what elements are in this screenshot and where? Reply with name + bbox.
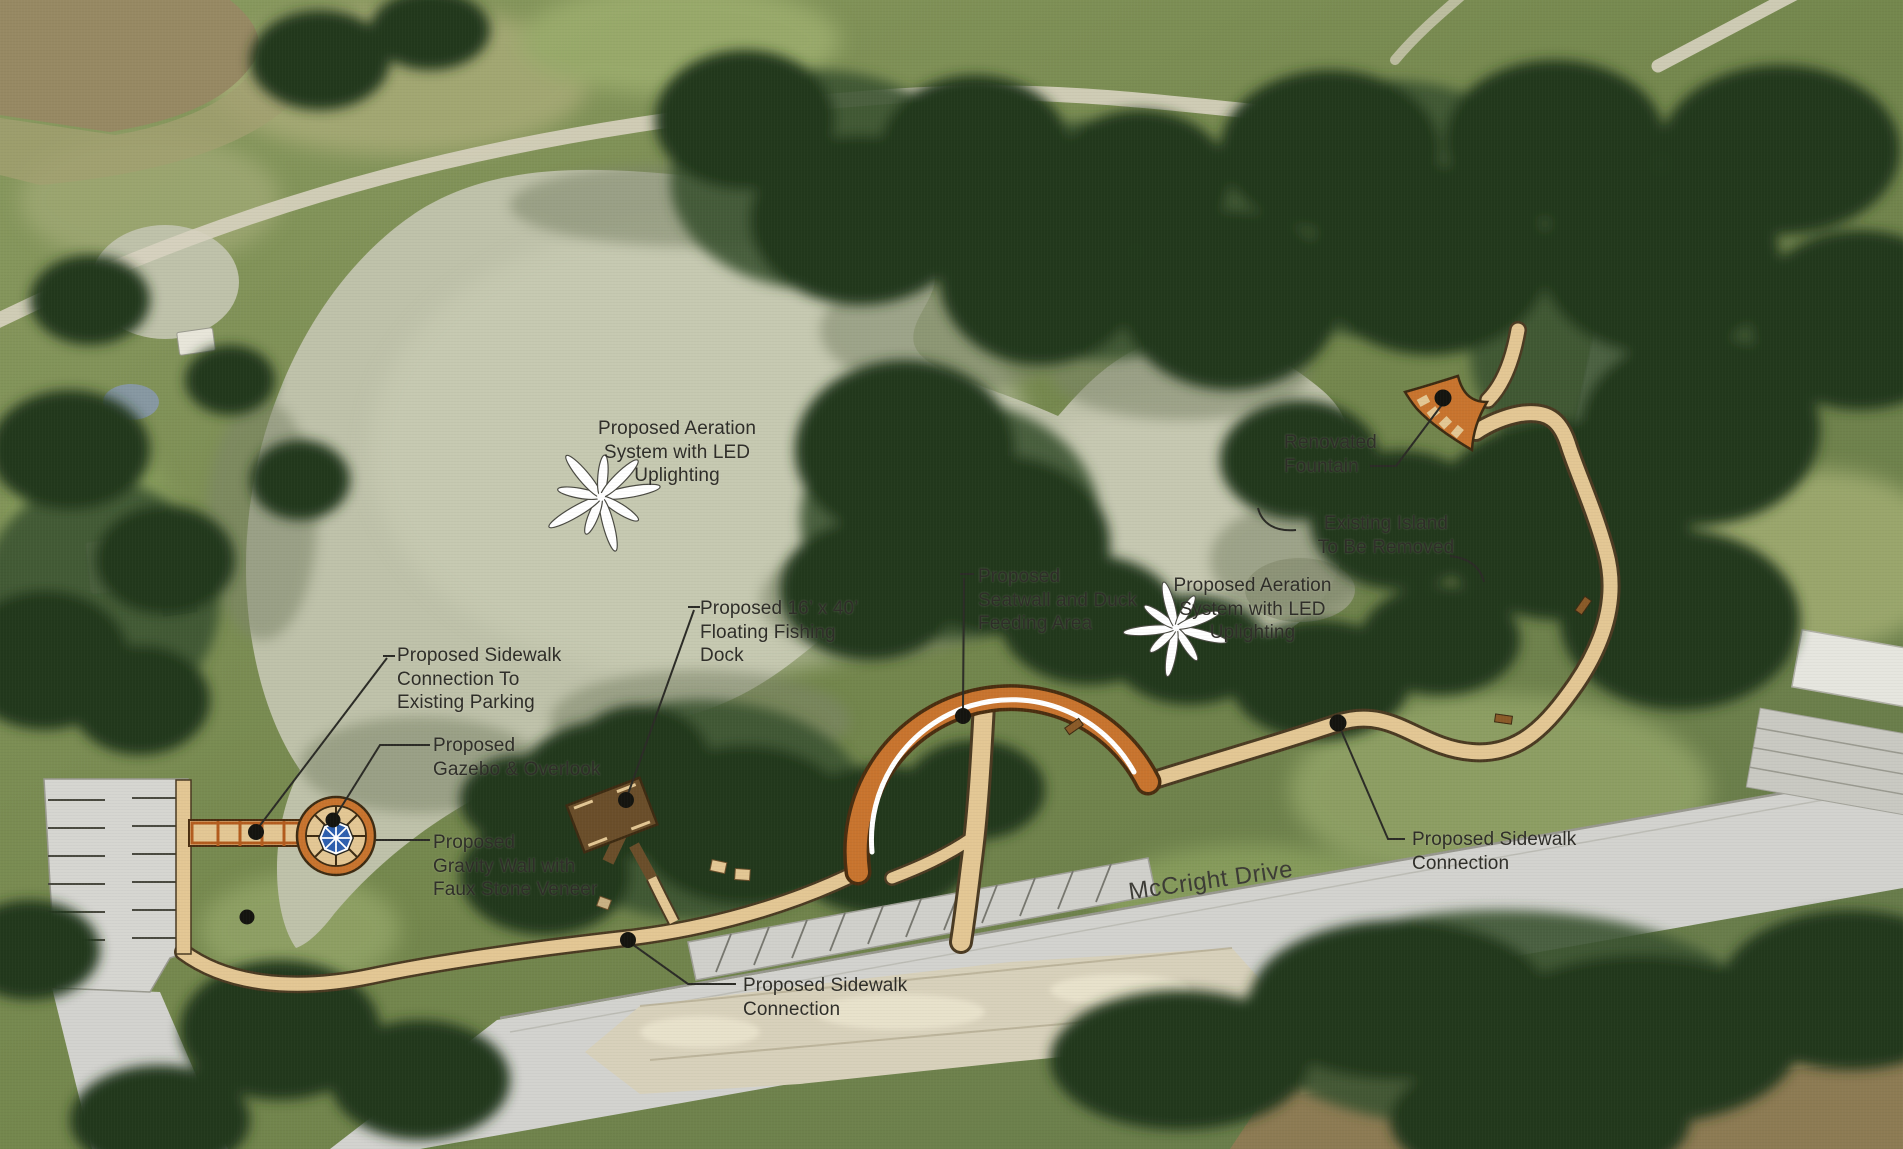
black-dot-marker — [955, 708, 971, 724]
picnic-table — [735, 869, 751, 881]
black-dot-marker — [240, 910, 255, 925]
gazebo-overlook-icon — [297, 797, 375, 875]
picnic-table — [710, 860, 727, 874]
label-seatwall-duck-area: Proposed Seatwall and Duck Feeding Area — [978, 565, 1137, 636]
boardwalk — [189, 820, 307, 846]
site-plan-svg — [0, 0, 1903, 1149]
label-sidewalk-connection-east: Proposed Sidewalk Connection — [1412, 828, 1576, 875]
bench — [1495, 714, 1513, 724]
fountain-dot-marker — [1435, 390, 1452, 407]
black-dot-marker — [248, 824, 264, 840]
label-floating-fishing-dock: Proposed 16’ x 40’ Floating Fishing Dock — [700, 597, 858, 668]
label-aeration-east: Proposed Aeration System with LED Upligh… — [1160, 574, 1345, 645]
label-renovated-fountain: Renovated Fountain — [1284, 431, 1377, 478]
black-dot-marker — [618, 792, 634, 808]
parking-sidewalk-strip — [176, 780, 191, 954]
label-gazebo-overlook: Proposed Gazebo & Overlook — [433, 734, 601, 781]
label-gravity-wall: Proposed Gravity Wall with Faux Stone Ve… — [433, 831, 597, 902]
black-dot-marker — [1330, 715, 1347, 732]
black-dot-marker — [326, 813, 341, 828]
black-dot-marker — [620, 932, 636, 948]
label-sidewalk-connection-south: Proposed Sidewalk Connection — [743, 974, 907, 1021]
label-aeration-west: Proposed Aeration System with LED Upligh… — [572, 417, 782, 488]
label-existing-island: Existing Island To Be Removed — [1296, 512, 1476, 559]
label-sidewalk-to-parking: Proposed Sidewalk Connection To Existing… — [397, 644, 561, 715]
site-plan: Proposed Aeration System with LED Upligh… — [0, 0, 1903, 1149]
